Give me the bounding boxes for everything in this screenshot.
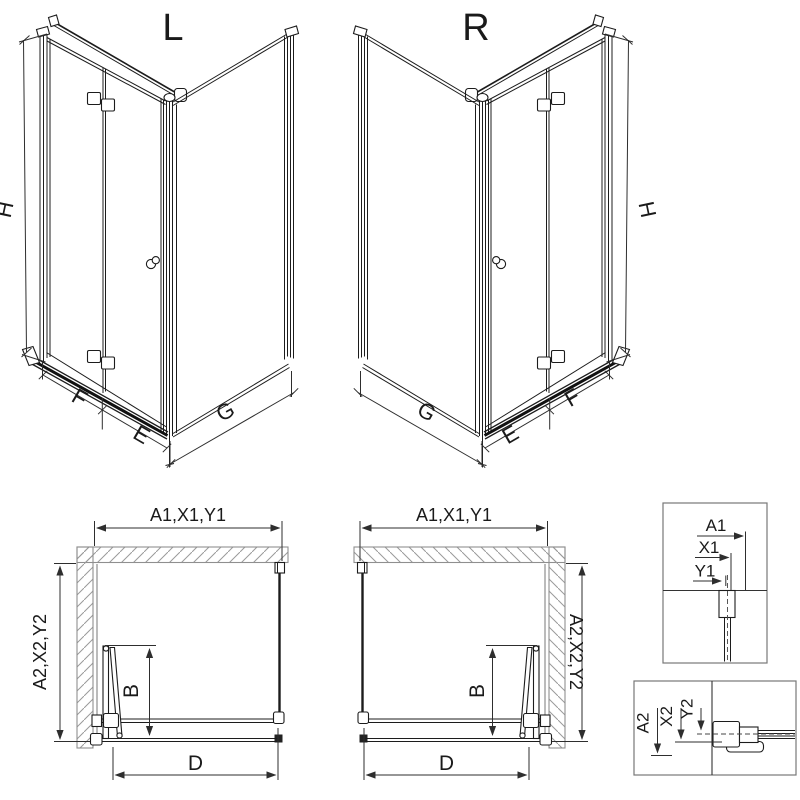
- dim-label-width-left: A1,X1,Y1: [150, 505, 226, 525]
- plan-view-left: A1,X1,Y1 A2,X2,Y2 B D: [30, 505, 288, 780]
- variant-label-right: R: [462, 7, 489, 49]
- detail-label-x2: X2: [657, 706, 676, 727]
- detail-label-y1: Y1: [695, 562, 716, 581]
- detail-box-bottom: A2 X2 Y2: [634, 681, 797, 775]
- dim-label-depth-right: A2,X2,Y2: [566, 614, 586, 690]
- iso-view-left: L H F E G: [0, 7, 298, 468]
- dim-label-f-right: F: [560, 383, 584, 411]
- dim-label-f-left: F: [68, 383, 92, 411]
- dim-label-e-left: E: [129, 420, 154, 449]
- dim-label-g-right: G: [413, 396, 440, 426]
- dim-label-g-left: G: [212, 396, 239, 426]
- dim-label-fold-right: B: [466, 684, 489, 698]
- dim-label-height-right: H: [633, 199, 661, 220]
- dim-label-opening-right: D: [439, 752, 454, 775]
- dim-label-e-right: E: [498, 420, 523, 449]
- iso-view-right: R H F E G: [354, 7, 662, 468]
- dim-label-depth-left: A2,X2,Y2: [30, 614, 50, 690]
- dim-label-width-right: A1,X1,Y1: [416, 505, 492, 525]
- detail-box-top: A1 X1 Y1: [663, 503, 767, 663]
- dim-label-fold-left: B: [120, 684, 143, 698]
- variant-label-left: L: [162, 7, 183, 49]
- shower-enclosure-dimension-drawing: L H F E G R H F E G A1,X1,Y1 A2,X2,Y2 B …: [0, 0, 800, 800]
- dim-label-height-left: H: [0, 199, 19, 220]
- detail-label-x1: X1: [699, 538, 720, 557]
- detail-label-a1: A1: [706, 516, 727, 535]
- technical-drawing-canvas: L H F E G R H F E G A1,X1,Y1 A2,X2,Y2 B …: [0, 0, 800, 800]
- detail-label-y2: Y2: [678, 699, 697, 720]
- plan-view-right: A1,X1,Y1 A2,X2,Y2 B D: [354, 505, 588, 780]
- detail-label-a2: A2: [634, 713, 653, 734]
- dim-label-opening-left: D: [188, 752, 203, 775]
